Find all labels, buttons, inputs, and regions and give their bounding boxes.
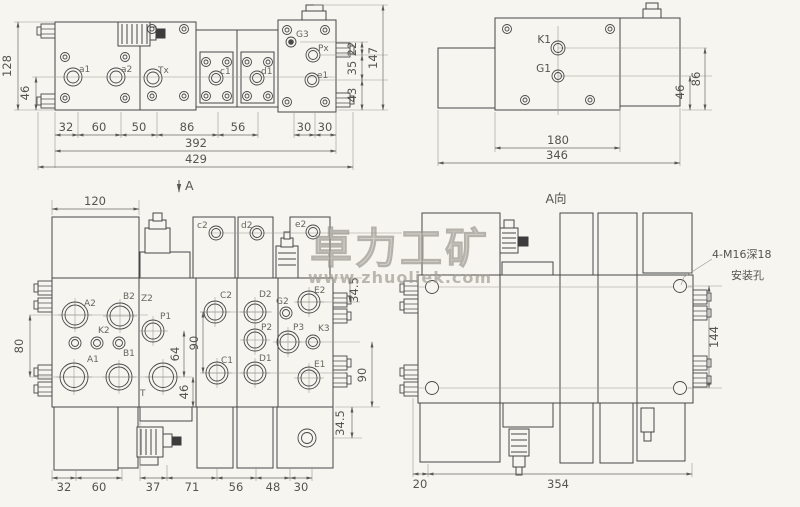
mounting-hole	[674, 382, 687, 395]
hex-plug-icon	[693, 356, 711, 370]
dim-front-w5: 56	[229, 480, 244, 494]
hex-fitting-icon	[302, 5, 326, 20]
side-right-extension	[620, 18, 680, 106]
hex-plug-icon	[333, 356, 351, 370]
solenoid-valve-icon	[137, 427, 181, 465]
dim-plan-width-sub: 392	[185, 136, 207, 150]
dim-plan-height: 128	[0, 55, 14, 77]
rear-top-block	[560, 213, 593, 275]
front-bottom-step	[140, 407, 192, 421]
dim-front-v64: 64	[168, 347, 182, 362]
port-label: E1	[314, 360, 325, 370]
hex-plug-icon	[333, 309, 351, 323]
dim-rear-h1: 144	[707, 326, 721, 348]
port-label: a1	[79, 65, 90, 75]
watermark-brand: 卓力工矿	[310, 224, 490, 273]
solenoid-valve-icon	[500, 220, 553, 275]
dim-plan-r3: 43	[345, 88, 359, 103]
front-bottom-block	[277, 407, 333, 468]
mounting-note-line2: 安装孔	[731, 268, 764, 282]
plan-section-4-inner	[241, 52, 274, 103]
front-bottom-block	[54, 407, 118, 470]
port-label: G2	[276, 297, 289, 307]
port-label: d1	[261, 67, 272, 77]
dim-rear-w1: 20	[413, 477, 428, 491]
valve-block-drawing: a1 a2 Tx c1 d1 G3 Px e1 128 46 32 60 50 …	[0, 0, 800, 507]
dim-plan-r-total: 147	[366, 47, 380, 69]
plan-view: a1 a2 Tx c1 d1 G3 Px e1 128 46 32 60 50 …	[0, 5, 388, 170]
dim-plan-w4: 86	[180, 120, 195, 134]
front-bottom-block	[237, 407, 273, 468]
watermark: 卓力工矿 www.zhuoliek.com	[308, 224, 492, 287]
dim-front-left: 80	[12, 339, 26, 354]
hex-plug-icon	[34, 281, 52, 295]
front-bottom-block	[197, 407, 233, 468]
side-left-extension	[438, 48, 495, 108]
port-label: D2	[259, 290, 272, 300]
port-label: Tx	[157, 66, 169, 76]
mounting-hole	[674, 280, 687, 293]
rear-bottom-step	[503, 403, 553, 427]
dim-plan-w3: 50	[132, 120, 147, 134]
port-label: c1	[220, 67, 231, 77]
port-label: G1	[536, 63, 551, 75]
hex-plug-icon	[37, 24, 55, 38]
port-label: e1	[317, 71, 328, 81]
dim-front-w3: 37	[146, 480, 161, 494]
watermark-url: www.zhuoliek.com	[308, 268, 492, 287]
solenoid-valve-icon	[509, 429, 529, 475]
port-label: T	[139, 389, 146, 399]
rear-top-block	[598, 213, 637, 275]
rear-top-block	[643, 213, 692, 273]
dim-plan-r1: 22	[345, 42, 359, 57]
port-label: P1	[160, 312, 171, 322]
relief-valve-icon	[140, 213, 190, 278]
mounting-note-line1: 4-M16深18	[712, 248, 771, 261]
rear-bottom-block	[420, 403, 500, 462]
view-label: A向	[545, 191, 566, 206]
dim-front-w1: 32	[57, 480, 72, 494]
dim-front-w2: 60	[92, 480, 107, 494]
dim-front-w7: 30	[294, 480, 309, 494]
port-label: B1	[123, 349, 135, 359]
dim-plan-w2: 60	[92, 120, 107, 134]
connector-icon	[643, 3, 661, 18]
port-label: Px	[318, 44, 329, 54]
hex-plug-icon	[400, 299, 418, 313]
dim-front-top: 120	[84, 194, 106, 208]
dim-front-v90: 90	[187, 336, 201, 351]
dim-side-h2: 86	[689, 72, 703, 87]
port-label: C1	[221, 356, 233, 366]
section-label: A	[185, 178, 194, 193]
port-label: Z2	[141, 294, 153, 304]
port-label: e2	[295, 220, 306, 230]
dim-rear-w2: 354	[547, 477, 569, 491]
port-label: d2	[241, 221, 252, 231]
port-label: D1	[259, 354, 272, 364]
engineering-drawing-page: a1 a2 Tx c1 d1 G3 Px e1 128 46 32 60 50 …	[0, 0, 800, 507]
dim-plan-w1: 32	[59, 120, 74, 134]
rear-bottom-block	[560, 403, 593, 463]
mounting-hole	[426, 382, 439, 395]
hex-plug-icon	[693, 373, 711, 387]
port-label: B2	[123, 292, 135, 302]
port-label: A2	[84, 299, 96, 309]
dim-front-r2: 90	[355, 368, 369, 383]
port-label: c2	[197, 221, 208, 231]
port-label: C2	[220, 291, 232, 301]
dim-plan-w6: 30	[297, 120, 312, 134]
rear-bottom-block	[600, 403, 633, 463]
dim-front-w4: 71	[185, 480, 200, 494]
port-label: E2	[314, 286, 325, 296]
dim-front-v46: 46	[177, 385, 191, 400]
dim-side-h1: 46	[673, 85, 687, 100]
rear-main-body	[418, 275, 693, 403]
dim-plan-r2: 35	[345, 61, 359, 76]
hex-plug-icon	[400, 382, 418, 396]
side-main-block	[495, 18, 620, 110]
dim-plan-w5: 56	[231, 120, 246, 134]
hex-plug-icon	[693, 306, 711, 320]
dim-front-r3: 34.5	[333, 410, 347, 436]
front-top-block-1	[52, 217, 139, 278]
plan-section-3-inner	[200, 52, 233, 103]
port-label: a2	[121, 65, 132, 75]
port-label: K2	[98, 326, 110, 336]
hex-plug-icon	[34, 382, 52, 396]
dim-front-w6: 48	[266, 480, 281, 494]
hex-plug-icon	[333, 373, 351, 387]
port-label: K1	[537, 34, 551, 46]
port-label: G3	[296, 30, 309, 40]
hex-plug-icon	[400, 365, 418, 379]
port-label: P2	[261, 323, 272, 333]
port-label: P3	[293, 323, 304, 333]
hex-plug-icon	[37, 94, 55, 108]
port-label: K3	[318, 324, 330, 334]
dim-plan-width-total: 429	[185, 152, 207, 166]
dim-plan-height-sub: 46	[18, 86, 32, 101]
dim-plan-w7: 30	[318, 120, 333, 134]
port-label: A1	[87, 355, 99, 365]
hex-plug-icon	[34, 298, 52, 312]
dim-side-width-total: 346	[546, 148, 568, 162]
side-view: K1 G1 180 346 46 86	[438, 3, 712, 166]
hex-plug-icon	[693, 290, 711, 304]
front-bottom-block	[118, 407, 138, 468]
dim-side-width-block: 180	[547, 133, 569, 147]
